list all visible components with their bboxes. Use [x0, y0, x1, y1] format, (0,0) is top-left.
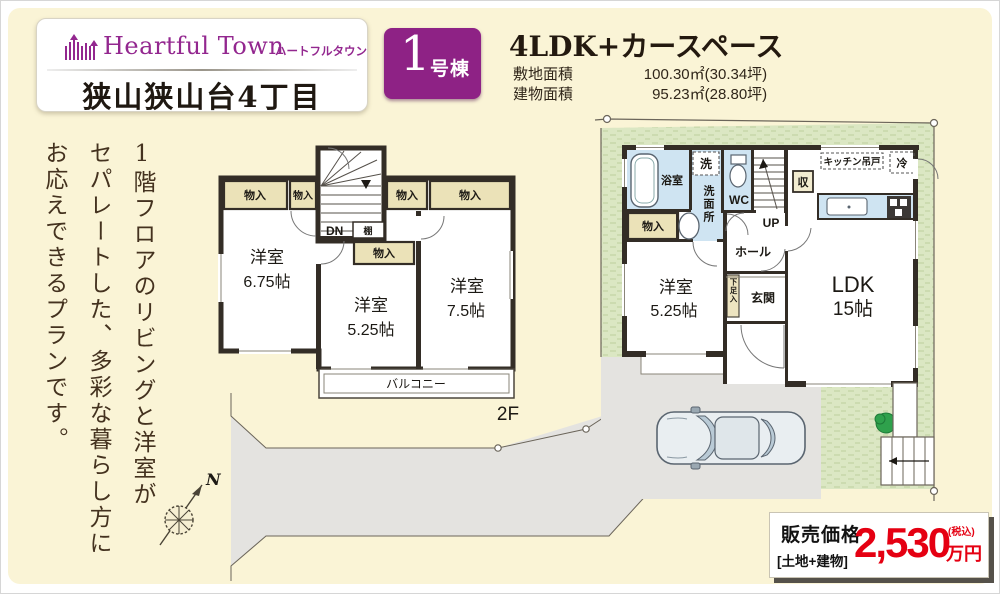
- toilet: [730, 155, 746, 187]
- kitchen-sink: [827, 198, 867, 215]
- entrance-label: 玄関: [751, 290, 775, 305]
- 2f-room3-name: 洋室: [450, 277, 484, 296]
- unit-number-badge: 1 号棟: [384, 28, 481, 99]
- catch-copy: 1階フロアのリビングと洋室が セパレートした、多彩な暮らし方に お応えできるプラ…: [29, 141, 157, 573]
- car: [657, 407, 805, 469]
- land-area-label: 敷地面積: [513, 65, 593, 85]
- ldk-name: LDK: [832, 272, 875, 297]
- price-tax-note: (税込): [948, 523, 975, 538]
- bathtub: [631, 154, 658, 207]
- washbasin: [679, 213, 699, 239]
- price-unit: 万円: [946, 540, 982, 566]
- price-amount: 2,530: [854, 519, 949, 567]
- layout-title: 4LDK+カースペース: [509, 25, 784, 65]
- price-label: 販売価格: [781, 520, 861, 547]
- fridge-label: 冷: [897, 156, 908, 170]
- bath-label: 浴室: [661, 173, 683, 187]
- 2f-room2-size: 5.25帖: [347, 321, 394, 339]
- land-area-value: 100.30㎡(30.34坪): [597, 65, 767, 85]
- 2f-room3-size: 7.5帖: [447, 302, 485, 320]
- north-arrowhead: [192, 485, 202, 496]
- price-box: 販売価格 [土地+建物] 2,530 (税込) 万円: [769, 512, 989, 578]
- price-sublabel: [土地+建物]: [777, 550, 848, 570]
- property-location: 狭山狭山台4丁目: [37, 74, 367, 116]
- brand-divider: [47, 69, 357, 71]
- brand-name: Heartful Town: [103, 32, 284, 60]
- 2f-floor-label: 2F: [497, 404, 519, 425]
- unit-number-suffix: 号棟: [430, 54, 470, 81]
- up-label: UP: [763, 216, 780, 230]
- 2f-closet2-label: 物入: [293, 189, 313, 202]
- 2f-closet3-label: 物入: [396, 188, 418, 202]
- brand-name-kana: ハートフルタウン: [275, 43, 367, 59]
- hall-label: ホール: [735, 245, 771, 259]
- 2f-closet4-label: 物入: [459, 188, 481, 202]
- wc-label: WC: [729, 193, 749, 207]
- washroom-label: 洗面所: [700, 185, 716, 224]
- catch-copy-line-2: セパレートした、多彩な暮らし方に: [82, 141, 113, 573]
- area-info: 敷地面積 100.30㎡(30.34坪) 建物面積 95.23㎡(28.80坪): [513, 65, 767, 105]
- floor-plan-1f: 浴室 洗 WC UP 収 キッチン吊戸 冷 物入 ホール 玄関 洋室 5.25帖…: [581, 101, 1000, 501]
- floor-plan-2f: 物入 物入 物入 物入 物入 棚 DN 洋室 6.75帖 洋室 5.25帖 洋室…: [211, 136, 546, 426]
- shoebox-label: 下足入: [728, 278, 739, 304]
- kitchen-stove: [887, 196, 911, 218]
- kitchen-cabinet-label: キッチン吊戸: [823, 157, 881, 168]
- unit-number: 1: [400, 26, 431, 82]
- 2f-closet5-label: 物入: [373, 246, 395, 260]
- storage-label: 収: [798, 176, 810, 189]
- 2f-room2-name: 洋室: [354, 296, 388, 315]
- compass-rose: [165, 506, 193, 534]
- 2f-balcony-label: バルコニー: [386, 377, 446, 391]
- 2f-closet1-label: 物入: [244, 188, 266, 202]
- 2f-room1-size: 6.75帖: [243, 273, 290, 291]
- 1f-room-name: 洋室: [659, 278, 693, 297]
- brand-trees-icon: [63, 34, 101, 64]
- 2f-shelf-label: 棚: [363, 225, 372, 236]
- catch-copy-line-3: お応えできるプランです。: [38, 141, 69, 573]
- 1f-closet-label: 物入: [642, 219, 664, 233]
- ldk-size: 15帖: [833, 298, 873, 320]
- 2f-down-label: DN: [326, 224, 343, 238]
- brand-card: Heartful Town ハートフルタウン 狭山狭山台4丁目: [36, 18, 368, 112]
- laundry-label: 洗: [700, 156, 712, 171]
- 2f-room1-name: 洋室: [250, 248, 284, 267]
- 1f-room-size: 5.25帖: [650, 302, 697, 320]
- brand-row: Heartful Town ハートフルタウン: [37, 28, 367, 66]
- land-area-row: 敷地面積 100.30㎡(30.34坪): [513, 65, 767, 85]
- north-label: N: [205, 470, 222, 489]
- flyer-page: Heartful Town ハートフルタウン 狭山狭山台4丁目 1 号棟 4LD…: [0, 0, 1000, 594]
- compass: N: [144, 463, 229, 558]
